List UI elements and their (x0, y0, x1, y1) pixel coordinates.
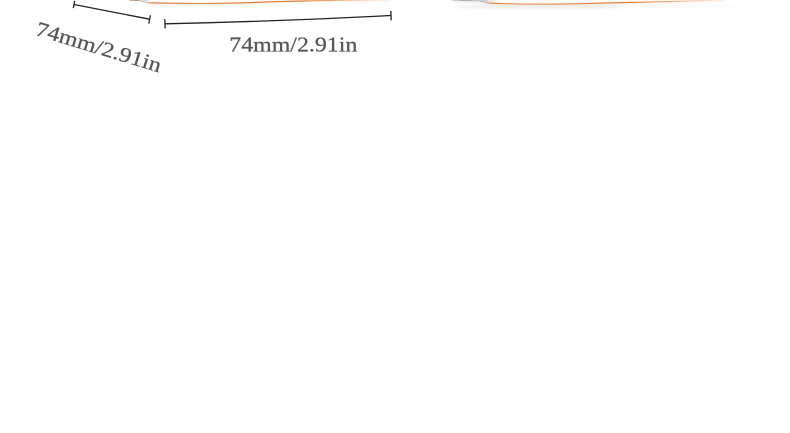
svg-text:74mm/2.91in: 74mm/2.91in (229, 33, 358, 57)
svg-text:74mm/2.91in: 74mm/2.91in (33, 17, 165, 78)
